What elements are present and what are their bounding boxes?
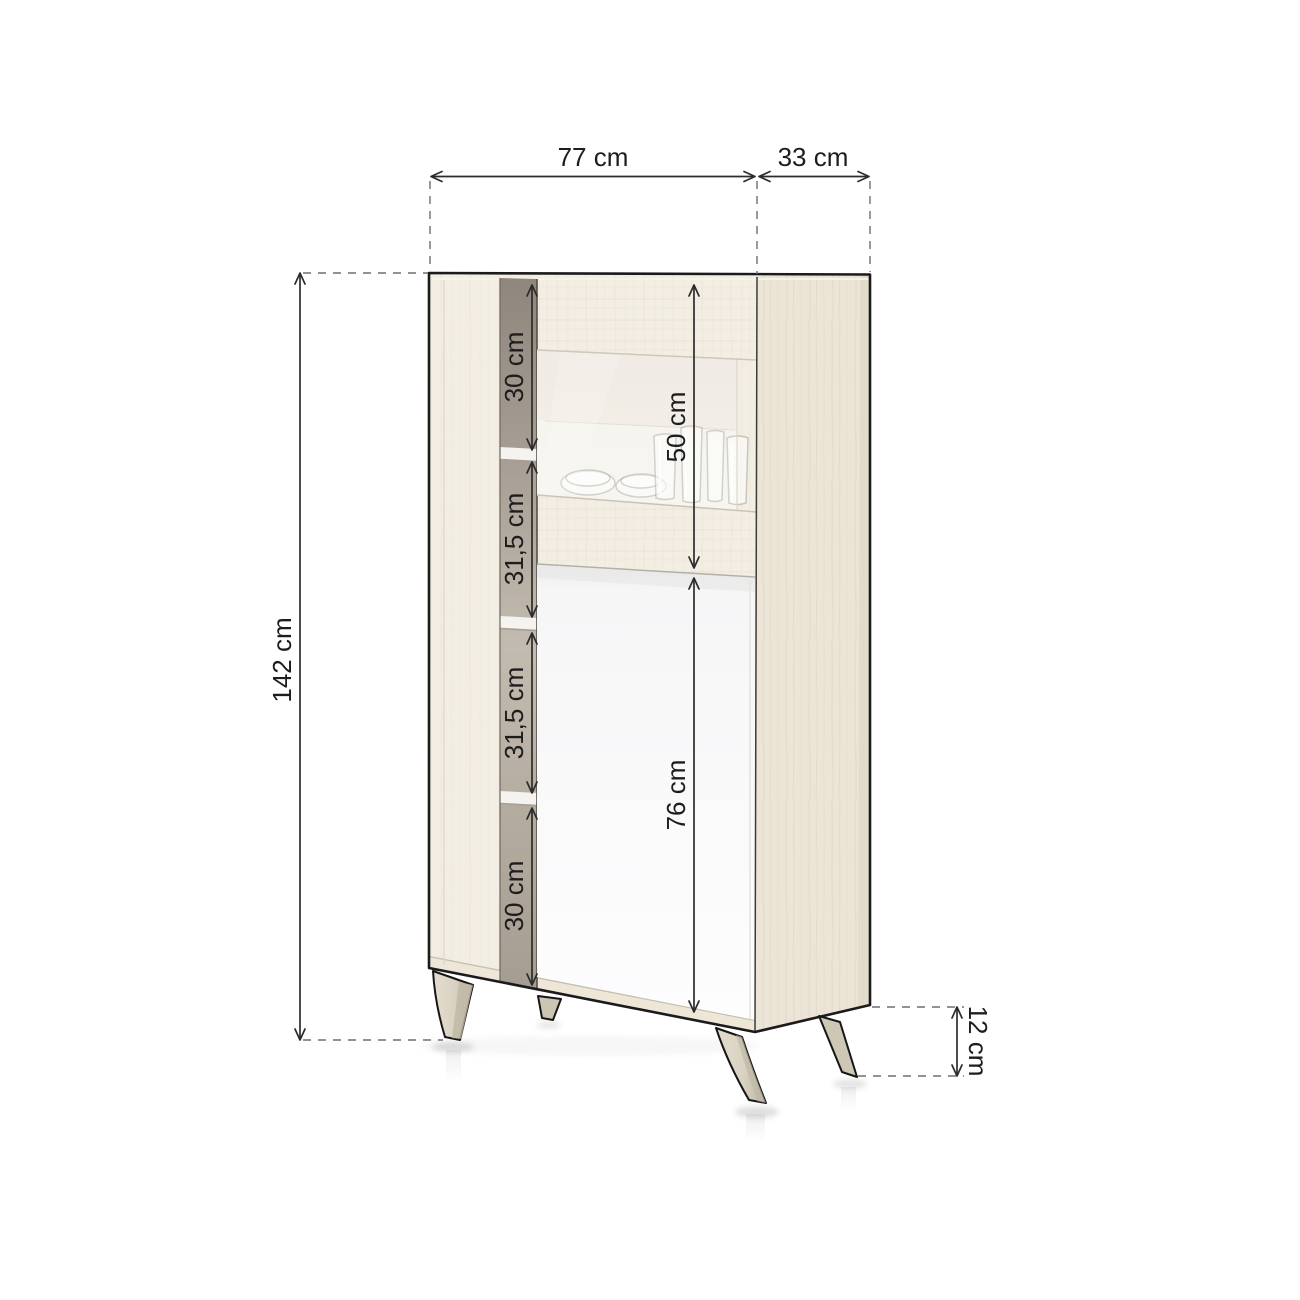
section-bottom-label: 30 cm — [499, 861, 529, 932]
leg-height-label: 12 cm — [963, 1006, 993, 1077]
cabinet — [429, 273, 870, 1103]
section-lower-mid-label: 31,5 cm — [499, 667, 529, 760]
glass-door — [537, 350, 757, 512]
height-label: 142 cm — [267, 617, 297, 702]
leg-back-left — [538, 996, 561, 1020]
section-top-label: 30 cm — [499, 332, 529, 403]
glass-compartment-label: 50 cm — [661, 392, 691, 463]
shelf-3 — [500, 791, 537, 806]
lower-door — [537, 564, 755, 1020]
furniture-dimension-diagram: 77 cm 33 cm 142 cm 30 cm 31,5 cm 31,5 cm… — [0, 0, 1300, 1300]
cabinet-side-panel — [755, 275, 870, 1033]
shelf-2 — [500, 616, 537, 631]
leg-back-right — [819, 1016, 857, 1077]
floor-shadows — [420, 1022, 867, 1143]
width-label: 77 cm — [558, 142, 629, 172]
depth-label: 33 cm — [778, 142, 849, 172]
diagram-canvas: 77 cm 33 cm 142 cm 30 cm 31,5 cm 31,5 cm… — [0, 0, 1300, 1300]
section-upper-mid-label: 31,5 cm — [499, 493, 529, 586]
door-compartment-label: 76 cm — [661, 760, 691, 831]
